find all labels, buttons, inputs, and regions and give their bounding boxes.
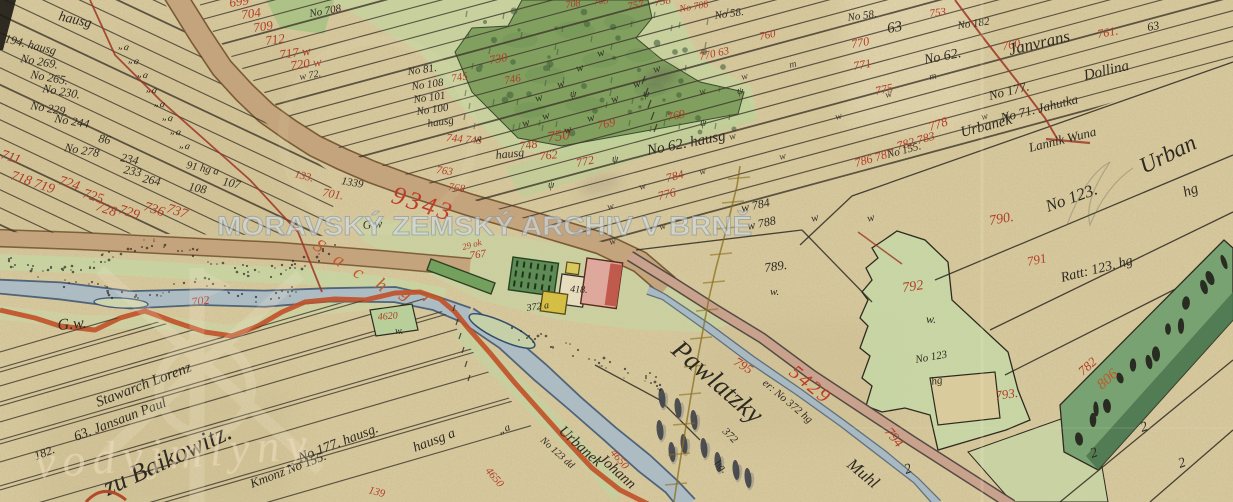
svg-text:MORAVSKÝ ZEMSKÝ ARCHIV V BRNĚ: MORAVSKÝ ZEMSKÝ ARCHIV V BRNĚ [217, 210, 752, 241]
svg-text:763: 763 [436, 164, 455, 178]
svg-text:793.: 793. [994, 385, 1019, 403]
svg-text:762: 762 [539, 147, 558, 163]
svg-text:ψ: ψ [737, 86, 744, 97]
svg-text:ψ: ψ [700, 118, 707, 129]
svg-text:712: 712 [264, 30, 286, 48]
svg-text:w.: w. [395, 326, 403, 337]
svg-text:63: 63 [886, 19, 904, 37]
svg-text:753: 753 [929, 6, 948, 20]
svg-text:4620: 4620 [377, 310, 398, 323]
svg-text:w.: w. [926, 312, 936, 326]
svg-text:ψ: ψ [570, 89, 577, 100]
svg-text:767: 767 [469, 248, 488, 262]
svg-text:G.w.: G.w. [57, 315, 87, 334]
svg-text:w.: w. [770, 286, 779, 298]
svg-text:792: 792 [901, 278, 924, 296]
svg-text:418.: 418. [570, 284, 588, 296]
svg-text:hausg: hausg [495, 145, 525, 162]
svg-text:ψ: ψ [612, 154, 619, 165]
svg-text:86: 86 [97, 131, 111, 147]
svg-text:789.: 789. [763, 257, 788, 275]
svg-text:63: 63 [1146, 18, 1160, 34]
svg-text:ψ: ψ [548, 180, 555, 191]
